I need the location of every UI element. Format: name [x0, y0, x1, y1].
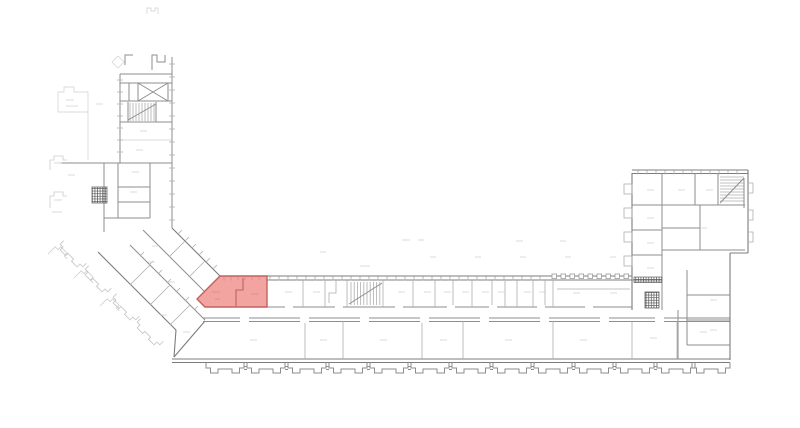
elevator-shaft-right	[645, 292, 659, 308]
paper-background	[0, 0, 800, 428]
floor-plan	[0, 0, 800, 428]
elevator-shaft-left	[92, 187, 107, 203]
floor-plan-page	[0, 0, 800, 428]
colonnade-dots	[552, 274, 629, 279]
ramp-hatch	[634, 277, 662, 283]
